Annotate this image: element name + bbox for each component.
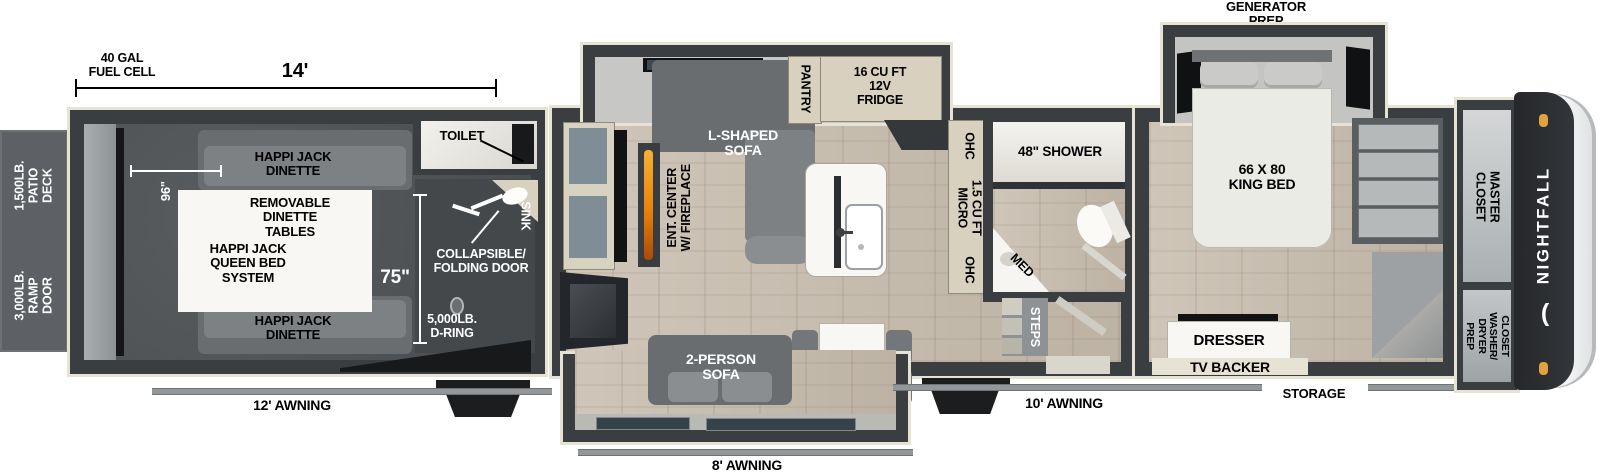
awning-main-label: 10' AWNING — [1012, 396, 1116, 411]
dim96-tick-left — [130, 165, 132, 177]
garage-width-dim-line — [130, 170, 222, 172]
cap-marker-light-top — [1539, 114, 1548, 127]
cap-marker-light-bottom — [1539, 362, 1548, 375]
removable-tables-label: REMOVABLE DINETTE TABLES — [238, 196, 342, 239]
pantry-label: PANTRY — [797, 65, 811, 114]
wardrobe-drawer-2 — [1358, 152, 1439, 178]
tv-panel — [614, 130, 627, 262]
main-entry-step — [930, 387, 1000, 414]
main-awning-rail-2 — [1368, 384, 1455, 391]
garage-length-dim-line — [75, 87, 497, 89]
bed-headboard — [1192, 50, 1332, 62]
bottom-slide-window-left — [596, 417, 690, 430]
washer-dryer-prep-label: CLOSET WASHER/ DRYER PREP — [1464, 312, 1510, 360]
bottom-slide-window-right — [706, 418, 856, 431]
kitchen-sink — [845, 204, 883, 270]
awning-living-label: 8' AWNING — [700, 458, 794, 472]
sink-drain — [858, 244, 864, 250]
bed-pillow-right — [1264, 62, 1322, 88]
dresser-label: DRESSER — [1178, 333, 1280, 350]
wardrobe-drawer-4 — [1358, 208, 1439, 238]
ent-center-label: ENT. CENTER W/ FIREPLACE — [666, 164, 694, 251]
fireplace-flame — [644, 150, 653, 260]
dresser-tv — [1178, 314, 1278, 322]
dim75-tick-bottom — [413, 342, 427, 344]
brand-name-label: NIGHTFALL — [1535, 166, 1554, 284]
ent-cabinet-door-top — [569, 128, 607, 184]
garage-side-wall — [84, 124, 116, 360]
two-person-sofa-label: 2-PERSON SOFA — [676, 352, 766, 383]
step-tread-3 — [1002, 338, 1022, 354]
tv-backer-label: TV BACKER — [1162, 360, 1298, 375]
dinette-bottom-label: HAPPI JACK DINETTE — [240, 314, 346, 343]
dim-tick-right — [495, 79, 497, 97]
shower-glass-door — [993, 182, 1125, 189]
master-closet-label: MASTER CLOSET — [1473, 171, 1501, 223]
main-awning-rail — [893, 384, 1262, 391]
garage-sink-label: SINK — [518, 201, 532, 230]
living-awning-rail — [578, 449, 913, 456]
l-shaped-sofa-label: L-SHAPED SOFA — [700, 128, 786, 159]
queen-bed-system-label: HAPPI JACK QUEEN BED SYSTEM — [196, 242, 300, 285]
l-shaped-sofa-chaise — [745, 236, 811, 264]
fuel-cell-label: 40 GAL FUEL CELL — [82, 52, 162, 80]
ohc-bottom-label: OHC — [962, 256, 976, 283]
folding-door-label: COLLAPSIBLE/ FOLDING DOOR — [423, 248, 539, 276]
crescent-moon-icon: ( — [1534, 300, 1556, 328]
fridge-label: 16 CU FT 12V FRIDGE — [840, 66, 920, 107]
dim96-tick-right — [220, 165, 222, 177]
island-counter-edge — [834, 176, 841, 268]
med-cabinet-label: MED — [1008, 252, 1037, 281]
ramp-door-label: 3,000LB. RAMP DOOR — [13, 262, 54, 330]
garage-door-frame — [116, 128, 124, 356]
ent-cabinet-door-bottom — [569, 196, 607, 258]
steps-label: STEPS — [1027, 307, 1041, 347]
ohc-top-label: OHC — [962, 132, 976, 159]
patio-deck-label: 1,500LB. PATIO DECK — [13, 152, 54, 220]
garage-length-label: 14' — [260, 60, 330, 82]
media-console-face — [570, 284, 616, 338]
kitchen-faucet-stem — [843, 231, 853, 234]
step-tread-2 — [1002, 318, 1022, 335]
wardrobe-drawer-1 — [1358, 124, 1439, 150]
d-ring-label: 5,000LB. D-RING — [412, 313, 492, 341]
storage-label: STORAGE — [1268, 387, 1360, 401]
step-tread-1 — [1002, 298, 1022, 315]
bedroom-window-right — [1346, 46, 1370, 109]
garage-awning-rail — [152, 388, 552, 395]
bed-pillow-left — [1200, 62, 1258, 88]
king-bed-label: 66 X 80 KING BED — [1216, 162, 1308, 193]
wardrobe-drawer-3 — [1358, 180, 1439, 206]
entry-threshold — [1046, 356, 1110, 374]
garage-width-label: 96" — [159, 181, 173, 201]
awning-garage-label: 12' AWNING — [240, 398, 344, 413]
dim75-tick-top — [413, 194, 427, 196]
garage-interior-label: 75" — [374, 268, 416, 289]
dim-tick-left — [75, 79, 77, 97]
rv-floorplan: 1,500LB. PATIO DECK 3,000LB. RAMP DOOR 4… — [0, 0, 1600, 472]
micro-label: 1.5 CU FT MICRO — [955, 180, 983, 236]
shower-label: 48" SHOWER — [1002, 145, 1118, 160]
dinette-top-label: HAPPI JACK DINETTE — [240, 150, 346, 179]
